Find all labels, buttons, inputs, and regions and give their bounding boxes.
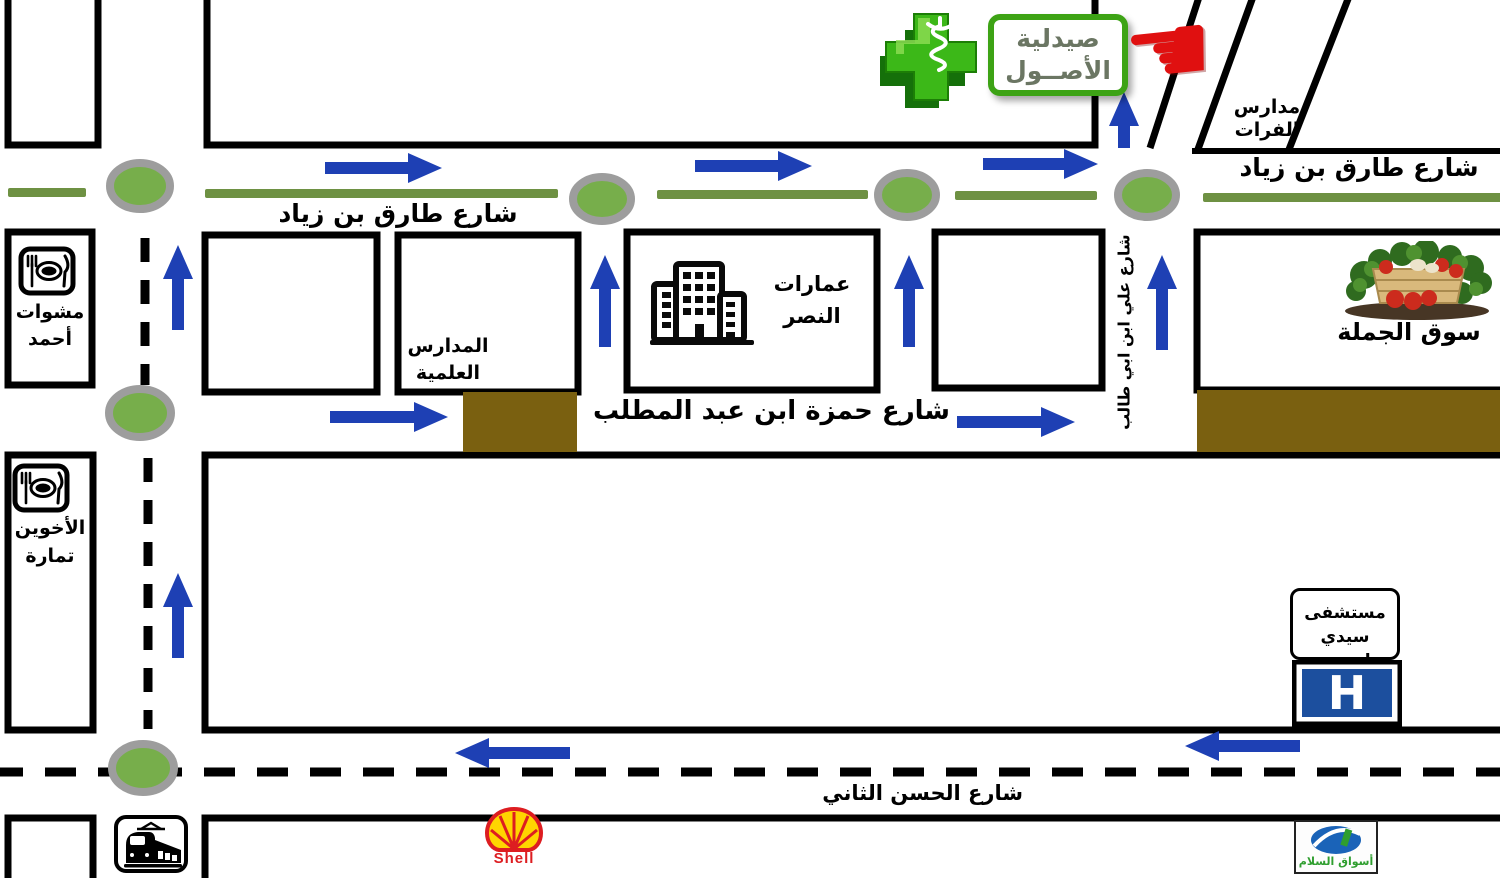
street-label-tariq-bin-ziyad-left: شارع طارق بن زياد: [278, 199, 518, 229]
place-label-science-schools: المدارس العلمية: [400, 333, 496, 387]
brown-strip: [463, 392, 577, 452]
city-block: [8, 818, 93, 878]
pharmacy-name-line1: صيدلية: [994, 23, 1122, 55]
roundabout: [112, 744, 174, 792]
traffic-arrow-up: [1147, 255, 1177, 350]
street-label-tariq-bin-ziyad-right: شارع طارق بن زياد: [1233, 153, 1485, 183]
traffic-arrow-up: [163, 245, 193, 330]
street-median-green: [955, 191, 1097, 200]
traffic-arrow-right: [330, 402, 448, 432]
street-label-hamza-ibn-abd-almuttalib: شارع حمزة ابن عبد المطلب: [598, 396, 950, 427]
street-label-hassan-ii: شارع الحسن الثاني: [858, 781, 1023, 806]
akhawayn-line2: تمارة: [10, 542, 90, 570]
traffic-arrow-up: [894, 255, 924, 347]
traffic-arrow-left: [1185, 731, 1300, 761]
hospital-letter: H: [1328, 666, 1367, 720]
aswak-assalam-text: أسواق السلام: [1294, 855, 1378, 868]
place-label-wholesale-market: سوق الجملة: [1328, 318, 1490, 346]
train-station-icon: [113, 814, 189, 874]
roundabout: [573, 177, 631, 221]
buildings-icon: [648, 256, 760, 350]
place-label-furat-schools: مدارس الفرات: [1216, 96, 1318, 142]
roundabout: [878, 173, 936, 217]
street-label-ali-ibn-abi-talib: شارع علي ابن ابي طالب: [1116, 234, 1135, 404]
city-block: [205, 235, 377, 392]
ahmed-grill-line2: أحمد: [12, 326, 88, 353]
traffic-arrow-right: [957, 407, 1075, 437]
shell-logo-text: Shell: [478, 850, 550, 867]
city-block: [935, 232, 1102, 388]
street-median-green: [1203, 193, 1500, 202]
furat-schools-line1: مدارس: [1216, 96, 1318, 119]
traffic-arrow-right: [983, 149, 1098, 179]
hospital-name-sign: مستشفى سيدي لحسن: [1290, 588, 1400, 660]
ahmed-grill-line1: مشوات: [12, 299, 88, 326]
furat-schools-line2: الفرات: [1216, 119, 1318, 142]
map-canvas: شارع طارق بن زياد شارع طارق بن زياد شارع…: [0, 0, 1500, 878]
vegetables-crate-image: [1340, 241, 1495, 321]
street-median-green: [8, 188, 86, 197]
brown-strip: [1197, 390, 1500, 452]
place-label-ahmed-grill: مشوات أحمد: [12, 299, 88, 353]
pointing-hand-icon: ☚: [1118, 0, 1219, 110]
roundabout: [110, 163, 170, 209]
street-median-green: [205, 189, 558, 198]
hospital-line1: مستشفى: [1293, 601, 1397, 625]
traffic-arrow-up: [590, 255, 620, 347]
roundabout: [109, 389, 171, 437]
city-block: [8, 0, 98, 145]
traffic-arrow-left: [455, 738, 570, 768]
traffic-arrow-right: [325, 153, 442, 183]
traffic-arrow-right: [695, 151, 812, 181]
restaurant-icon: [12, 463, 70, 513]
nasr-line2: النصر: [760, 300, 864, 332]
plate-center: [42, 267, 57, 276]
place-label-akhawayn-tamara: الأخوين تمارة: [10, 514, 90, 570]
restaurant-icon: [18, 246, 76, 296]
street-median-green: [657, 190, 868, 199]
science-schools-line2: العلمية: [400, 360, 496, 387]
shell-logo: [478, 806, 550, 854]
hospital-h-sign: H: [1292, 660, 1402, 728]
traffic-arrow-up: [163, 573, 193, 658]
science-schools-line1: المدارس: [400, 333, 496, 360]
pharmacy-cross-icon: [880, 6, 992, 108]
roundabout: [1118, 173, 1176, 217]
pharmacy-name-line2: الأصــول: [994, 55, 1122, 87]
pharmacy-sign: صيدلية الأصــول: [988, 14, 1128, 96]
akhawayn-line1: الأخوين: [10, 514, 90, 542]
street-medians: [8, 188, 1500, 202]
nasr-line1: عمارات: [760, 268, 864, 300]
place-label-nasr-buildings: عمارات النصر: [760, 268, 864, 332]
